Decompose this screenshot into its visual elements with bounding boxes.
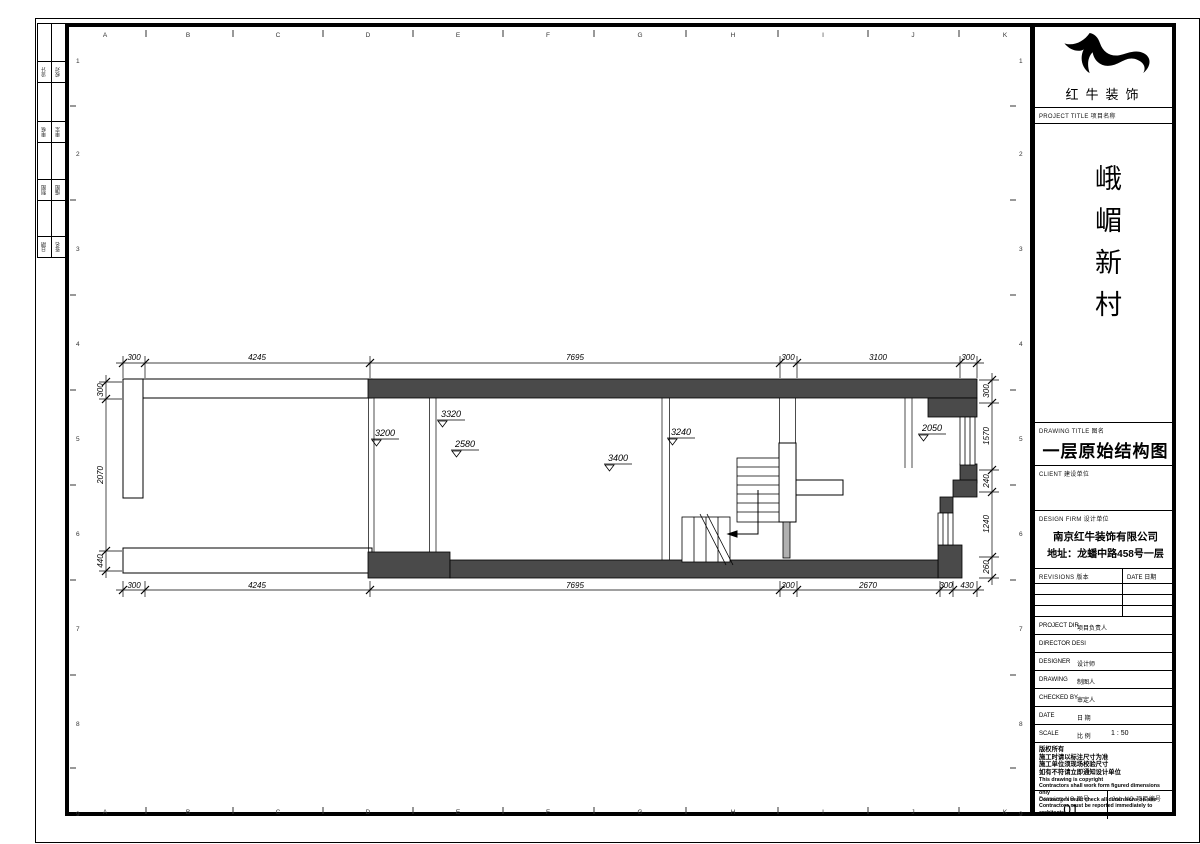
- dimension-chain-top: 300 4245 7695 300 3100 300: [116, 353, 984, 378]
- grid-letter: E: [456, 809, 461, 816]
- grid-letter: B: [186, 32, 190, 39]
- row-label-zh: 日 期: [1077, 713, 1091, 722]
- dim-label: 440: [96, 554, 105, 568]
- grid-number: 8: [1019, 721, 1023, 728]
- grid-letter: H: [731, 32, 736, 39]
- dim-label: 300: [982, 384, 991, 398]
- dim-label: 1570: [982, 427, 991, 445]
- drawing-no: 01: [1035, 801, 1107, 817]
- grid-letters-bottom: A B C D E F G H I J K: [103, 807, 1008, 816]
- grid-letter: D: [366, 809, 371, 816]
- grid-number: 1: [1019, 58, 1023, 65]
- grid-number: 2: [76, 151, 80, 158]
- grid-number: 4: [76, 341, 80, 348]
- grid-number: 9: [1019, 811, 1023, 817]
- drawing-title: 一层原始结构图: [1035, 437, 1176, 462]
- dim-label: 430: [960, 581, 974, 590]
- copyright-notes: 版权所有 施工时请以标注尺寸为准 施工单位须现场校验尺寸 如有不符请立即通知设计…: [1035, 743, 1176, 791]
- grid-letter: J: [911, 32, 914, 39]
- grid-letter: I: [822, 809, 824, 816]
- grid-number: 9: [76, 811, 80, 817]
- level-label: 3240: [671, 427, 691, 437]
- grid-letter: H: [731, 809, 736, 816]
- signature-cell: 签名: [56, 242, 61, 252]
- grid-number: 6: [1019, 531, 1023, 538]
- dim-label: 7695: [566, 581, 584, 590]
- copyright-line: 如有不符请立即通知设计单位: [1039, 769, 1172, 777]
- grid-letter: G: [637, 809, 642, 816]
- level-label: 2050: [921, 423, 942, 433]
- dimension-chain-right: 300 1570 240 1240 260: [979, 373, 999, 585]
- dim-label: 4245: [248, 581, 266, 590]
- grid-letter: I: [822, 32, 824, 39]
- revision-row: [1035, 606, 1176, 617]
- project-title-label: PROJECT TITLE 项目名称: [1039, 111, 1116, 120]
- grid-letter: D: [366, 32, 371, 39]
- dim-label: 300: [939, 581, 953, 590]
- row-label-en: PROJECT DIR: [1039, 623, 1079, 629]
- company-logo-section: 红牛装饰: [1035, 30, 1176, 108]
- grid-number: 8: [76, 721, 80, 728]
- client-label: CLIENT 建设单位: [1039, 469, 1089, 478]
- personnel-row-scale: SCALE 比 例 1 : 50: [1035, 725, 1176, 743]
- dim-label: 240: [982, 474, 991, 489]
- dim-label: 1240: [982, 515, 991, 533]
- grid-numbers-left: 1 2 3 4 5 6 7 8 9: [70, 58, 80, 817]
- design-firm-name: 南京红牛装饰有限公司: [1035, 529, 1176, 544]
- signature-cell: 校对: [56, 67, 61, 77]
- level-annotation: 3240: [667, 427, 695, 445]
- dim-label: 260: [982, 560, 991, 575]
- dim-label: 2070: [96, 466, 105, 485]
- row-label-en: DESIGNER: [1039, 659, 1070, 665]
- grid-letter: C: [276, 809, 281, 816]
- signature-cell: 制图: [42, 185, 47, 195]
- dim-label: 2670: [858, 581, 877, 590]
- floor-plan-canvas: A B C D E F G H I J K A B C D E F G H I …: [70, 27, 1026, 817]
- signature-table: 设计 校对 审核 审定 制图 描图 日期 签名: [37, 23, 66, 258]
- personnel-row-designer: DESIGNER 设计师: [1035, 653, 1176, 671]
- revisions-table: REVISIONS 版本 DATE 日期: [1035, 569, 1176, 617]
- plan-staircase: [682, 458, 779, 565]
- copyright-line: 施工单位须现场校验尺寸: [1039, 761, 1172, 769]
- grid-letter: G: [637, 32, 642, 39]
- drawing-number-band: Drawing NO 图号 01 Job NO 项目编号: [1035, 791, 1176, 819]
- scale-value: 1 : 50: [1111, 730, 1129, 737]
- level-label: 3200: [375, 428, 395, 438]
- grid-number: 7: [76, 626, 80, 633]
- personnel-row-project-dir: PROJECT DIR 项目负责人: [1035, 617, 1176, 635]
- grid-number: 3: [1019, 246, 1023, 253]
- dim-label: 300: [96, 383, 105, 397]
- level-label: 2580: [454, 439, 475, 449]
- row-label-en: SCALE: [1039, 731, 1059, 737]
- row-label-zh: 项目负责人: [1077, 623, 1107, 632]
- signature-cell: 审核: [42, 127, 47, 137]
- dim-label: 7695: [566, 353, 584, 362]
- revision-row: [1035, 595, 1176, 606]
- grid-letter: F: [546, 809, 550, 816]
- personnel-row-director: DIRECTOR DESI: [1035, 635, 1176, 653]
- level-annotation: 3320: [437, 409, 465, 427]
- grid-number: 4: [1019, 341, 1023, 348]
- signature-cell: 描图: [56, 185, 61, 195]
- revision-row: [1035, 584, 1176, 595]
- grid-letter: A: [103, 809, 108, 816]
- plan-partitions: [369, 398, 913, 560]
- window-icon: [938, 513, 953, 545]
- row-label-en: CHECKED BY: [1039, 695, 1078, 701]
- grid-letter: C: [276, 32, 281, 39]
- copyright-line: This drawing is copyright: [1039, 777, 1172, 784]
- row-label-zh: 制图人: [1077, 677, 1095, 686]
- job-no-label: Job NO 项目编号: [1112, 794, 1161, 803]
- row-label-zh: 比 例: [1077, 731, 1091, 740]
- copyright-line: 版权所有: [1039, 746, 1172, 754]
- plan-walls-outline: [123, 379, 372, 573]
- signature-cell: 设计: [42, 67, 47, 77]
- grid-letters-top: A B C D E F G H I J K: [103, 30, 1008, 39]
- dimension-chain-left: 300 2070 440: [96, 375, 122, 578]
- level-annotation: 2580: [451, 439, 479, 457]
- project-title-label-band: PROJECT TITLE 项目名称: [1035, 108, 1176, 124]
- signature-cell: 审定: [56, 127, 61, 137]
- plan-cross-pier: [779, 443, 843, 522]
- project-name: 峨嵋新村: [1086, 124, 1125, 422]
- dim-label: 4245: [248, 353, 266, 362]
- level-annotation: 2050: [918, 423, 946, 441]
- design-firm-address: 地址：龙蟠中路458号一层: [1035, 545, 1176, 560]
- grid-number: 3: [76, 246, 80, 253]
- redbull-logo-icon: [1058, 30, 1154, 82]
- dim-label: 300: [127, 353, 141, 362]
- grid-letter: K: [1003, 809, 1008, 816]
- signature-cell: 日期: [42, 242, 47, 252]
- grid-letter: J: [911, 809, 914, 816]
- level-annotation: 3400: [604, 453, 632, 471]
- title-block: 红牛装饰 PROJECT TITLE 项目名称 峨嵋新村 DRAWING TIT…: [1035, 27, 1176, 816]
- dimension-chain-bottom: 300 4245 7695 300 2670 300 430: [116, 581, 984, 597]
- level-annotations: 3200 3320 2580 3400 3240 2050: [371, 409, 946, 471]
- grid-number: 6: [76, 531, 80, 538]
- drawing-title-label: DRAWING TITLE 图名: [1039, 426, 1104, 435]
- date-column-label: DATE 日期: [1127, 572, 1156, 581]
- grid-number: 1: [76, 58, 80, 65]
- grid-letter: E: [456, 32, 461, 39]
- personnel-row-date: DATE 日 期: [1035, 707, 1176, 725]
- dim-label: 300: [781, 581, 795, 590]
- grid-number: 5: [1019, 436, 1023, 443]
- drawing-title-band: DRAWING TITLE 图名 一层原始结构图: [1035, 423, 1176, 466]
- project-name-band: 峨嵋新村: [1035, 124, 1176, 423]
- grid-letter: A: [103, 32, 108, 39]
- grid-number: 2: [1019, 151, 1023, 158]
- personnel-row-drawing: DRAWING 制图人: [1035, 671, 1176, 689]
- row-label-en: DIRECTOR DESI: [1039, 641, 1086, 647]
- row-label-zh: 设计师: [1077, 659, 1095, 668]
- grid-letter: B: [186, 809, 190, 816]
- row-label-en: DATE: [1039, 713, 1055, 719]
- level-label: 3400: [608, 453, 628, 463]
- company-name: 红牛装饰: [1035, 84, 1176, 103]
- level-annotation: 3200: [371, 428, 399, 446]
- dim-label: 3100: [869, 353, 887, 362]
- grid-number: 7: [1019, 626, 1023, 633]
- grid-number: 5: [76, 436, 80, 443]
- grid-letter: K: [1003, 32, 1008, 39]
- dim-label: 300: [781, 353, 795, 362]
- window-icon: [960, 417, 975, 465]
- client-band: CLIENT 建设单位: [1035, 466, 1176, 511]
- level-label: 3320: [441, 409, 461, 419]
- wall-post: [783, 522, 790, 558]
- dim-label: 300: [127, 581, 141, 590]
- dim-label: 300: [961, 353, 975, 362]
- row-label-zh: 审定人: [1077, 695, 1095, 704]
- grid-letter: F: [546, 32, 550, 39]
- row-label-en: DRAWING: [1039, 677, 1068, 683]
- revisions-label: REVISIONS 版本: [1039, 572, 1089, 581]
- grid-numbers-right: 1 2 3 4 5 6 7 8 9: [1010, 58, 1023, 817]
- design-firm-label: DESIGN FIRM 设计单位: [1039, 514, 1109, 523]
- design-firm-band: DESIGN FIRM 设计单位 南京红牛装饰有限公司 地址：龙蟠中路458号一…: [1035, 511, 1176, 569]
- personnel-row-checked-by: CHECKED BY 审定人: [1035, 689, 1176, 707]
